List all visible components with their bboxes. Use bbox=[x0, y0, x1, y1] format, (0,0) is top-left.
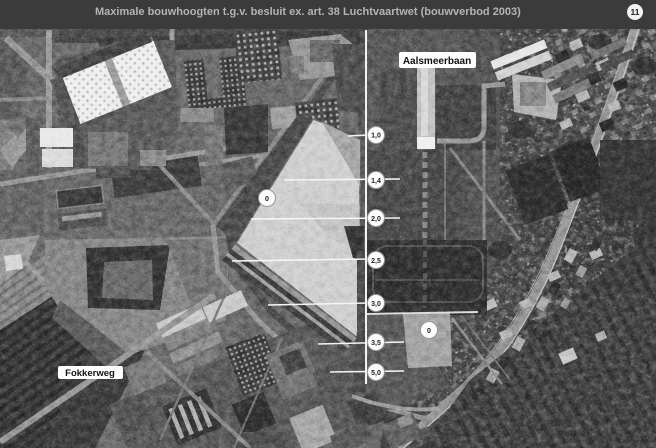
svg-text:Aalsmeerbaan: Aalsmeerbaan bbox=[403, 56, 471, 67]
svg-text:11: 11 bbox=[631, 7, 640, 17]
svg-text:5,0: 5,0 bbox=[371, 370, 381, 377]
svg-text:0: 0 bbox=[427, 328, 431, 335]
svg-text:Maximale bouwhoogten t.g.v. be: Maximale bouwhoogten t.g.v. besluit ex. … bbox=[95, 6, 521, 18]
svg-text:3,0: 3,0 bbox=[371, 301, 381, 308]
svg-text:2,0: 2,0 bbox=[371, 216, 381, 223]
svg-text:0: 0 bbox=[265, 196, 269, 203]
svg-text:Fokkerweg: Fokkerweg bbox=[65, 368, 115, 379]
svg-text:3,5: 3,5 bbox=[371, 340, 381, 347]
svg-text:2,5: 2,5 bbox=[371, 258, 381, 265]
svg-text:1,4: 1,4 bbox=[371, 178, 381, 185]
svg-text:1,0: 1,0 bbox=[371, 133, 381, 140]
